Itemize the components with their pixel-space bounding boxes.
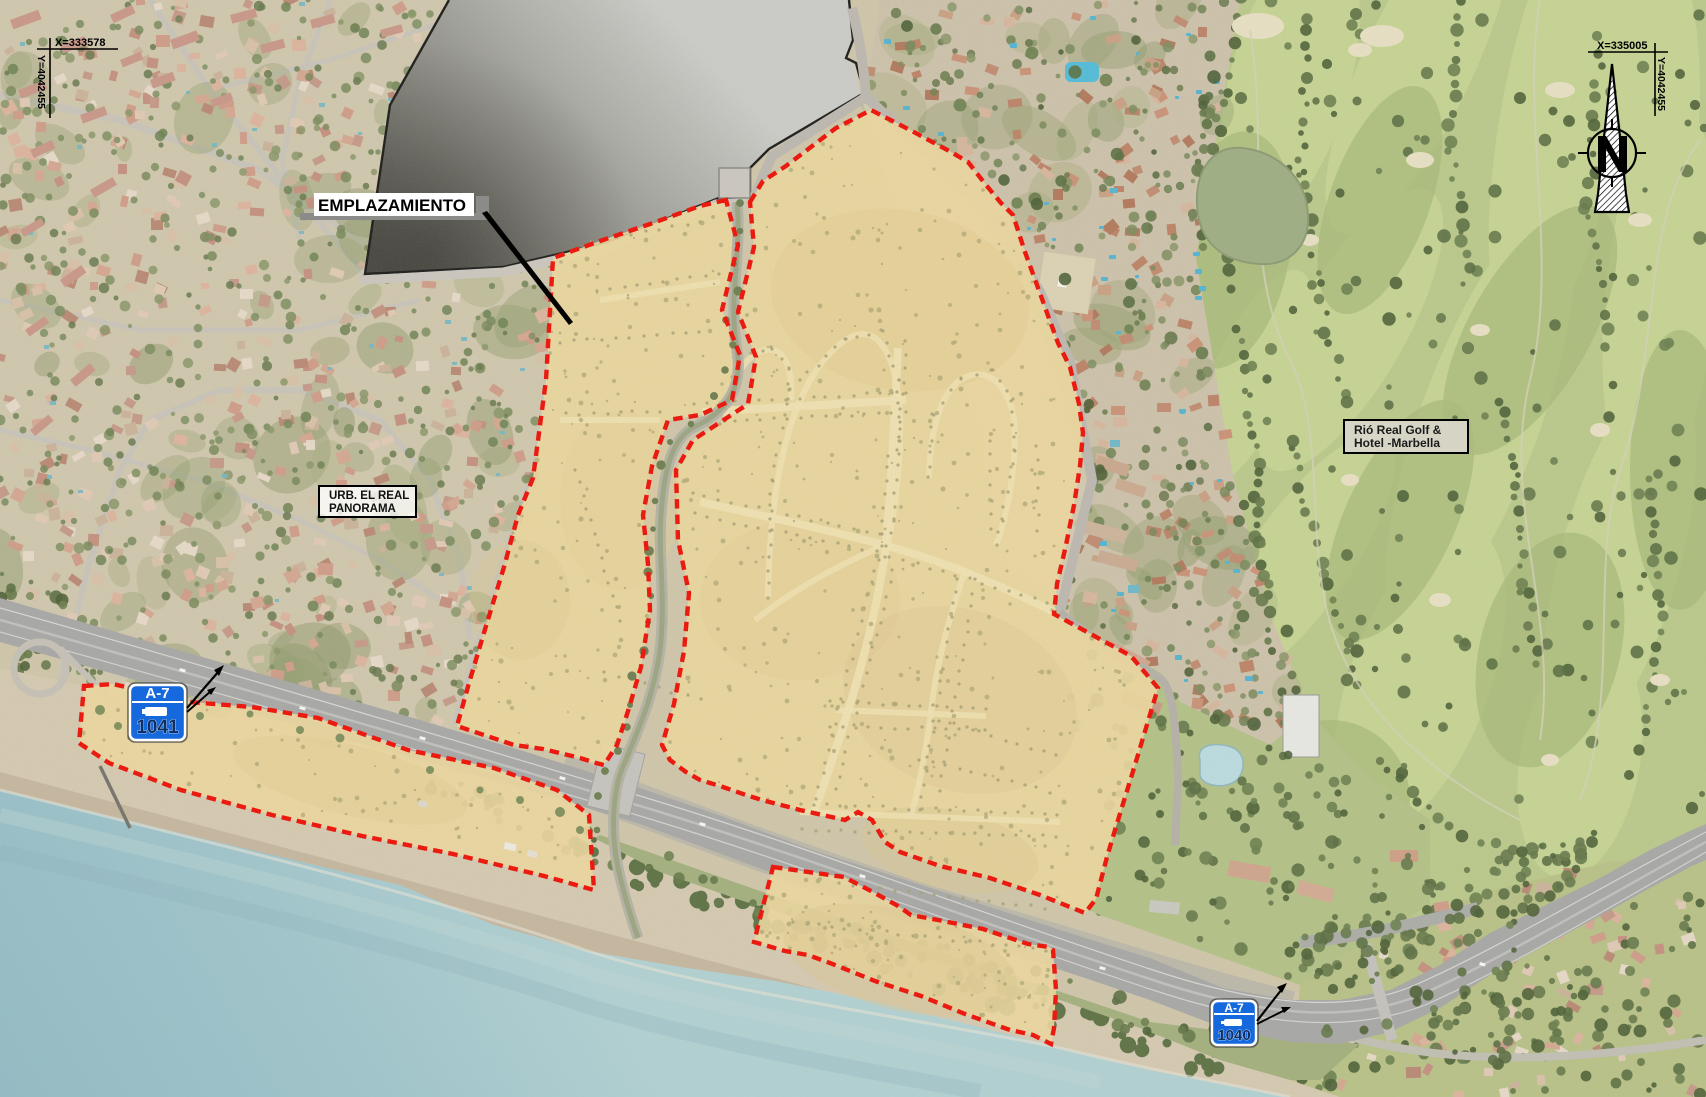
svg-text:X=333578: X=333578 xyxy=(55,37,105,49)
svg-text:X=335005: X=335005 xyxy=(1597,40,1647,52)
svg-text:1040: 1040 xyxy=(1217,1027,1250,1044)
svg-text:URB. EL REAL: URB. EL REAL xyxy=(329,490,409,502)
svg-text:Rió Real Golf &: Rió Real Golf & xyxy=(1354,423,1442,437)
svg-text:EMPLAZAMIENTO: EMPLAZAMIENTO xyxy=(318,196,466,215)
svg-text:Hotel -Marbella: Hotel -Marbella xyxy=(1354,436,1440,450)
svg-text:1041: 1041 xyxy=(136,717,179,738)
svg-text:Y=4042455: Y=4042455 xyxy=(35,55,47,109)
svg-text:A-7: A-7 xyxy=(145,685,169,702)
svg-text:A-7: A-7 xyxy=(1224,1001,1244,1015)
svg-text:Y=4042455: Y=4042455 xyxy=(1655,57,1667,111)
svg-text:PANORAMA: PANORAMA xyxy=(329,503,396,515)
